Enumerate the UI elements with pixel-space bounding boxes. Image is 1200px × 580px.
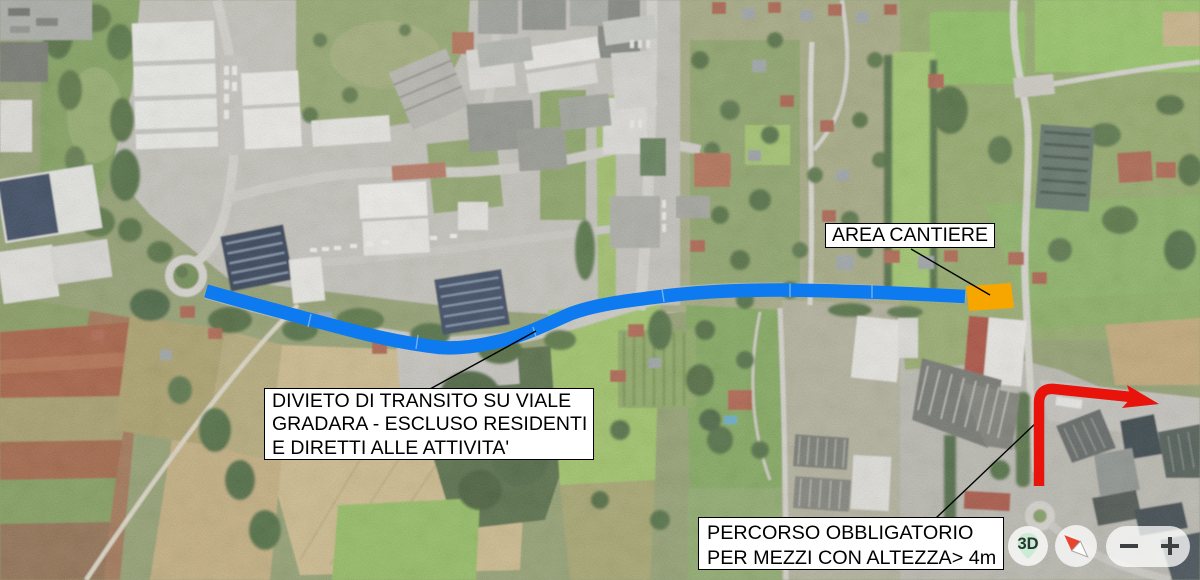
svg-text:3D: 3D <box>1017 535 1038 553</box>
